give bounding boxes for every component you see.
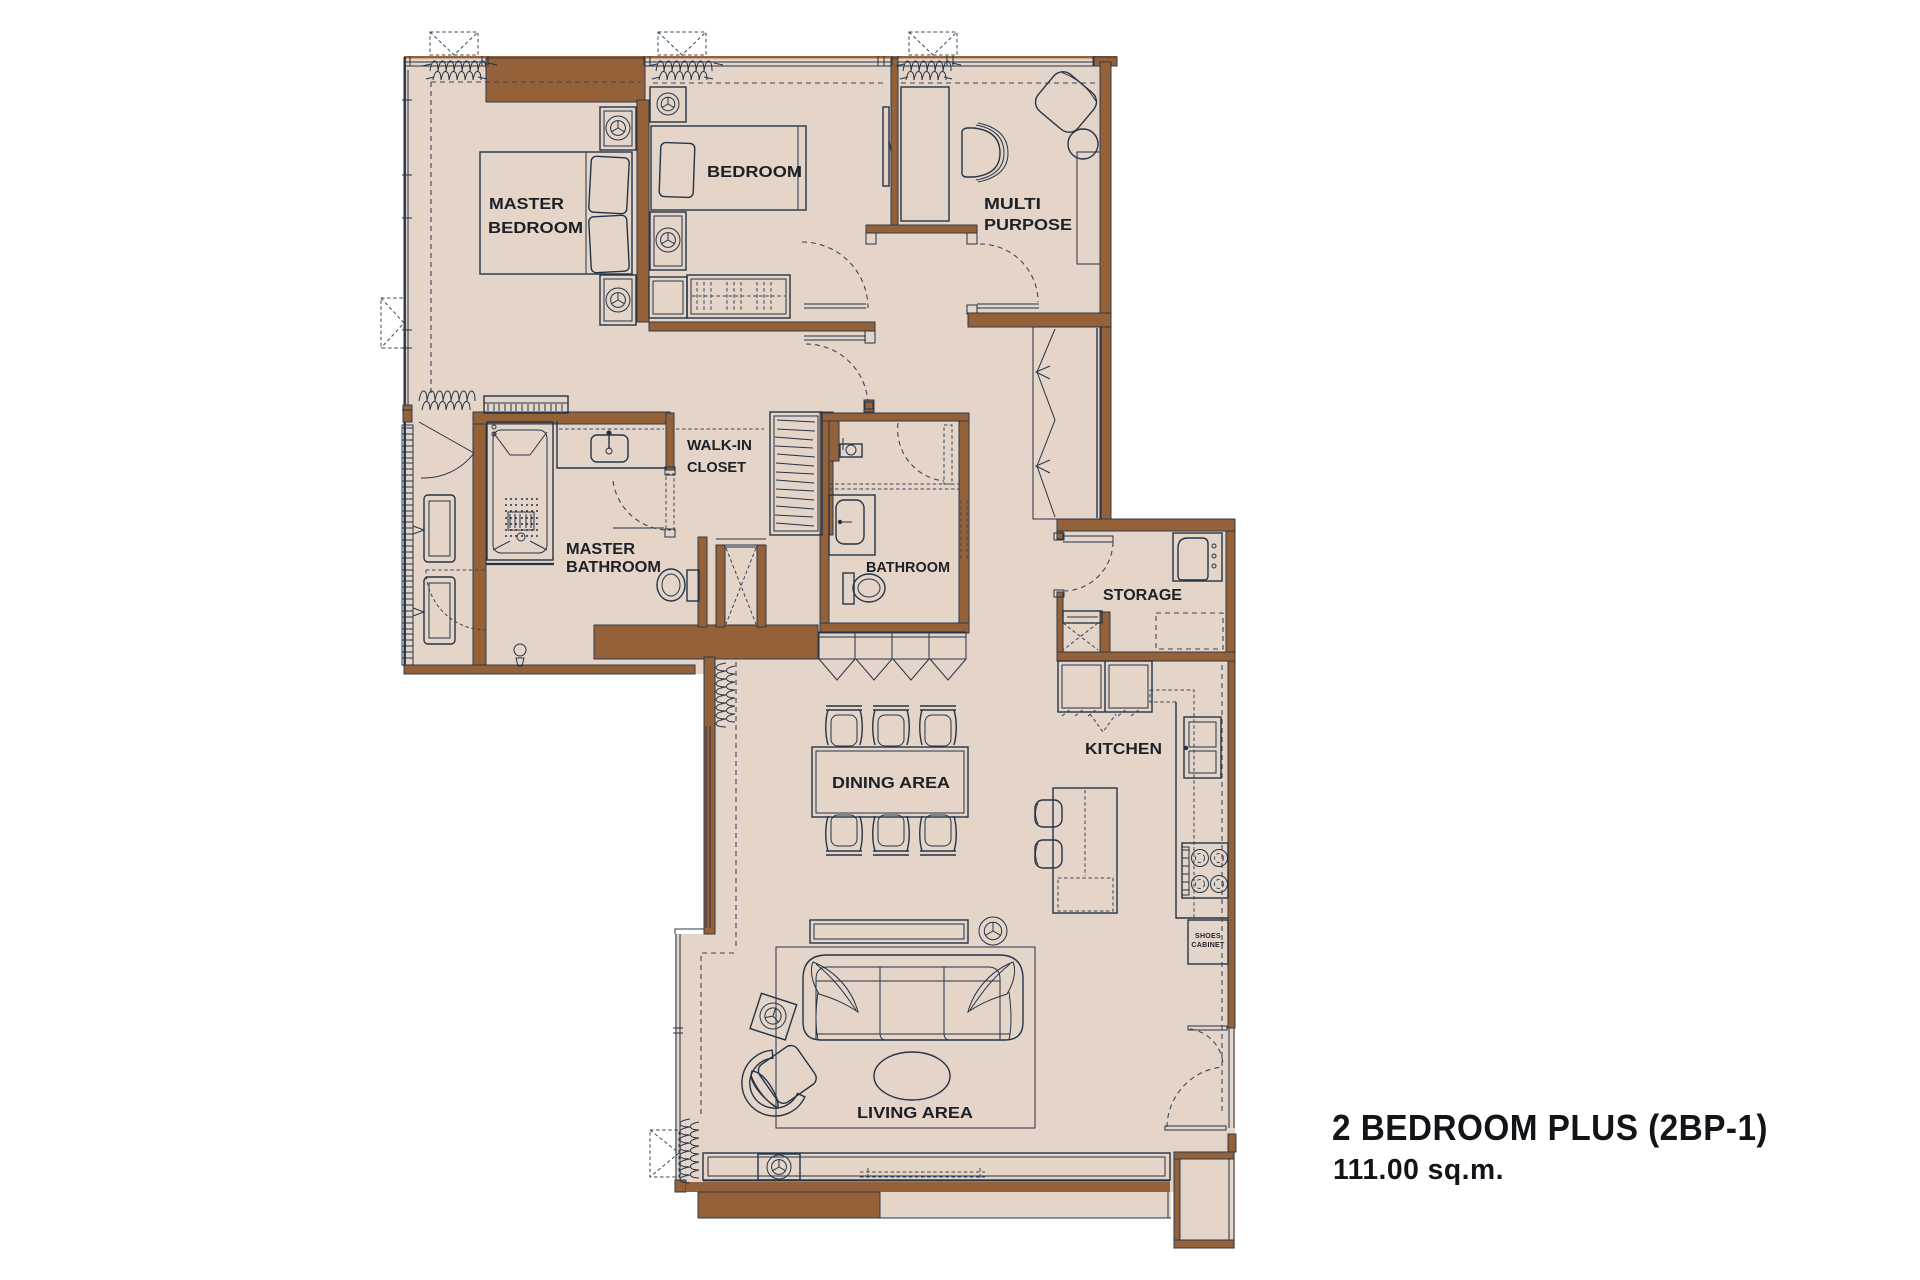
svg-text:CABINET: CABINET xyxy=(1191,942,1225,949)
svg-text:MULTI: MULTI xyxy=(984,196,1041,213)
svg-text:CLOSET: CLOSET xyxy=(687,459,746,476)
svg-text:DINING AREA: DINING AREA xyxy=(832,775,950,792)
svg-text:BEDROOM: BEDROOM xyxy=(488,220,583,237)
svg-text:SHOES: SHOES xyxy=(1195,933,1221,940)
svg-text:MASTER: MASTER xyxy=(566,541,635,558)
svg-text:BATHROOM: BATHROOM xyxy=(866,559,950,576)
svg-text:STORAGE: STORAGE xyxy=(1103,587,1182,604)
svg-text:BATHROOM: BATHROOM xyxy=(566,559,661,576)
svg-text:WALK-IN: WALK-IN xyxy=(687,437,752,454)
svg-text:BEDROOM: BEDROOM xyxy=(707,164,802,181)
svg-text:PURPOSE: PURPOSE xyxy=(984,217,1072,234)
svg-text:2 BEDROOM PLUS (2BP-1): 2 BEDROOM PLUS (2BP-1) xyxy=(1332,1107,1768,1148)
svg-text:KITCHEN: KITCHEN xyxy=(1085,741,1162,758)
svg-text:111.00 sq.m.: 111.00 sq.m. xyxy=(1333,1154,1504,1186)
svg-text:MASTER: MASTER xyxy=(489,196,564,213)
svg-text:LIVING AREA: LIVING AREA xyxy=(857,1105,973,1122)
